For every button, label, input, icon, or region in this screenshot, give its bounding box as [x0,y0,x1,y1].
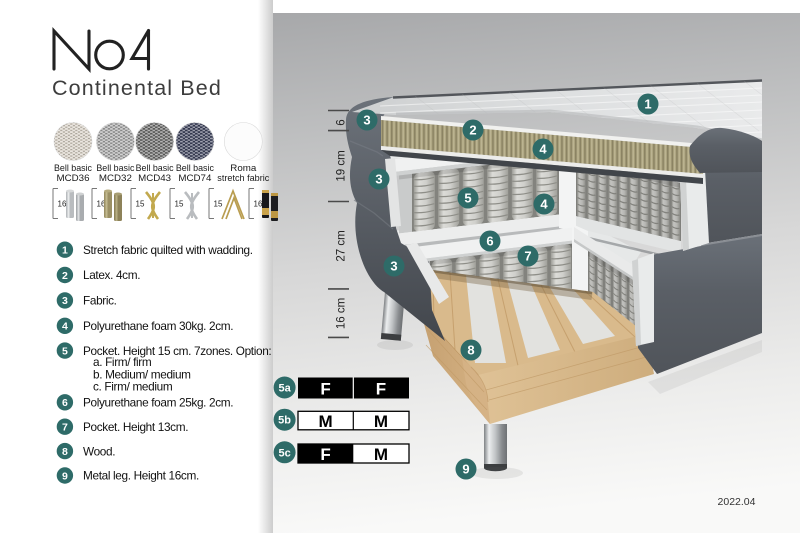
svg-text:Wood.: Wood. [83,444,115,458]
svg-text:Stretch fabric quilted with wa: Stretch fabric quilted with wadding. [83,243,253,257]
svg-text:F: F [320,380,330,399]
svg-text:5a: 5a [278,382,291,394]
svg-text:Bell basic: Bell basic [96,163,134,173]
svg-text:27 cm: 27 cm [336,230,348,261]
svg-text:16 cm: 16 cm [336,298,348,329]
svg-text:2: 2 [469,123,476,138]
svg-text:stretch fabric: stretch fabric [217,173,269,183]
svg-text:5c: 5c [278,447,290,459]
svg-text:F: F [320,445,330,464]
svg-text:3: 3 [363,113,370,128]
svg-text:3: 3 [390,259,397,274]
svg-text:2: 2 [62,270,68,282]
svg-text:Bell basic: Bell basic [176,163,214,173]
svg-text:7: 7 [524,249,531,264]
svg-text:Continental Bed: Continental Bed [52,76,222,100]
svg-text:4: 4 [539,142,547,157]
svg-text:8: 8 [467,343,474,358]
svg-text:Polyurethane foam 30kg. 2cm.: Polyurethane foam 30kg. 2cm. [83,319,233,333]
svg-text:c. Firm/ medium: c. Firm/ medium [93,380,173,394]
svg-text:1: 1 [644,97,651,112]
svg-text:16: 16 [58,200,67,209]
svg-text:5b: 5b [278,415,291,427]
svg-text:Fabric.: Fabric. [83,294,117,308]
svg-text:M: M [374,412,388,431]
svg-text:MCD32: MCD32 [99,173,132,183]
svg-text:F: F [376,380,386,399]
svg-text:6: 6 [336,119,348,125]
svg-text:9: 9 [62,470,68,482]
svg-text:9: 9 [462,462,469,477]
svg-text:Latex. 4cm.: Latex. 4cm. [83,268,140,282]
svg-text:M: M [319,412,333,431]
svg-text:Bell basic: Bell basic [136,163,174,173]
svg-text:Metal leg. Height 16cm.: Metal leg. Height 16cm. [83,469,199,483]
svg-text:7: 7 [62,421,68,433]
svg-text:4: 4 [540,197,548,212]
svg-text:15: 15 [214,200,223,209]
svg-text:MCD36: MCD36 [57,173,90,183]
svg-text:Bell basic: Bell basic [54,163,92,173]
svg-text:8: 8 [62,446,68,458]
svg-text:6: 6 [62,397,68,409]
svg-text:15: 15 [175,200,184,209]
svg-text:5: 5 [62,345,68,357]
svg-text:MCD74: MCD74 [178,173,211,183]
svg-text:Pocket. Height 13cm.: Pocket. Height 13cm. [83,420,188,434]
svg-text:Roma: Roma [230,163,257,173]
svg-text:1: 1 [62,244,68,256]
svg-text:MCD43: MCD43 [138,173,171,183]
svg-text:M: M [374,445,388,464]
svg-text:Polyurethane foam 25kg. 2cm.: Polyurethane foam 25kg. 2cm. [83,396,233,410]
svg-text:16: 16 [254,200,263,209]
svg-text:3: 3 [375,172,382,187]
svg-text:3: 3 [62,295,68,307]
svg-text:2022.04: 2022.04 [718,496,756,508]
svg-text:6: 6 [486,234,493,249]
svg-text:5: 5 [464,191,471,206]
svg-text:19 cm: 19 cm [336,150,348,181]
svg-text:15: 15 [136,200,145,209]
svg-text:4: 4 [62,321,68,333]
